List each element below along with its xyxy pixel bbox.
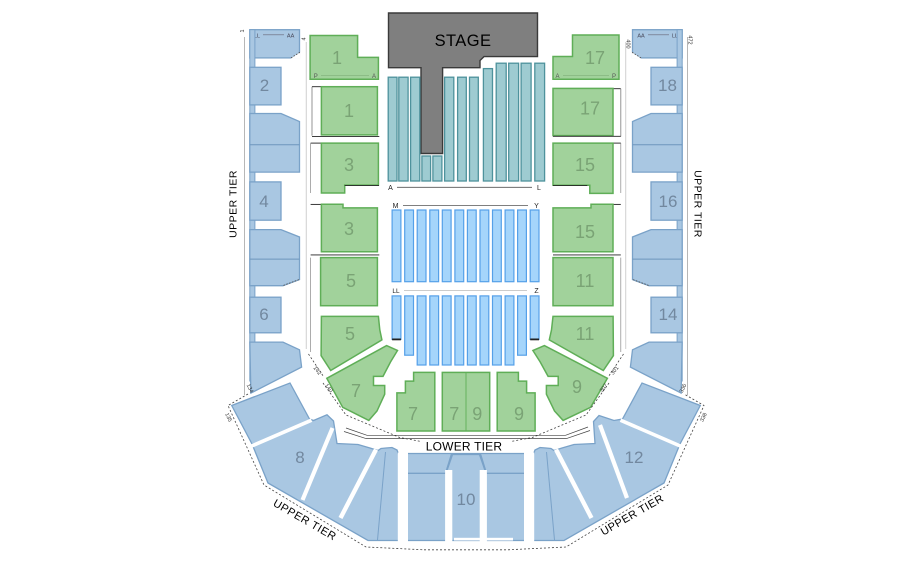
svg-text:P: P — [314, 74, 318, 80]
svg-text:4: 4 — [259, 192, 268, 211]
svg-text:5: 5 — [345, 324, 355, 344]
svg-text:Y: Y — [534, 203, 539, 210]
svg-text:10: 10 — [457, 490, 476, 509]
svg-text:P: P — [612, 74, 616, 80]
svg-text:3: 3 — [344, 155, 354, 175]
svg-text:UPPER TIER: UPPER TIER — [227, 170, 239, 238]
svg-text:9: 9 — [514, 404, 524, 424]
svg-text:A: A — [388, 185, 393, 192]
svg-text:17: 17 — [585, 48, 605, 68]
svg-text:L: L — [537, 185, 541, 192]
svg-text:AA: AA — [637, 33, 645, 39]
svg-text:STAGE: STAGE — [435, 32, 492, 50]
svg-text:AA: AA — [287, 33, 295, 39]
svg-text:15: 15 — [575, 155, 595, 175]
svg-text:2: 2 — [260, 76, 269, 95]
svg-text:7: 7 — [351, 381, 361, 401]
svg-text:1: 1 — [344, 101, 354, 121]
svg-text:11: 11 — [576, 271, 595, 291]
svg-text:5: 5 — [346, 271, 356, 291]
svg-text:400: 400 — [625, 39, 631, 48]
svg-text:16: 16 — [659, 192, 678, 211]
svg-text:18: 18 — [658, 76, 677, 95]
svg-text:LOWER TIER: LOWER TIER — [426, 439, 503, 453]
svg-text:M: M — [393, 203, 399, 210]
svg-text:6: 6 — [259, 305, 268, 324]
svg-text:1: 1 — [240, 29, 246, 32]
svg-text:4: 4 — [302, 37, 308, 40]
svg-text:LL: LL — [392, 288, 400, 295]
svg-text:8: 8 — [295, 448, 304, 467]
svg-text:9: 9 — [572, 377, 582, 397]
svg-text:9: 9 — [472, 404, 482, 424]
svg-text:11: 11 — [576, 324, 595, 344]
svg-text:3: 3 — [344, 219, 354, 239]
svg-text:12: 12 — [625, 448, 644, 467]
svg-text:15: 15 — [575, 222, 595, 242]
svg-text:7: 7 — [449, 404, 459, 424]
svg-text:472: 472 — [687, 35, 693, 44]
svg-text:A: A — [372, 74, 376, 80]
svg-text:17: 17 — [580, 99, 600, 119]
svg-text:14: 14 — [659, 305, 678, 324]
svg-text:7: 7 — [408, 404, 418, 424]
svg-text:1: 1 — [332, 48, 342, 68]
svg-text:A: A — [555, 74, 559, 80]
svg-text:Z: Z — [534, 288, 539, 295]
svg-text:UPPER TIER: UPPER TIER — [692, 170, 704, 238]
